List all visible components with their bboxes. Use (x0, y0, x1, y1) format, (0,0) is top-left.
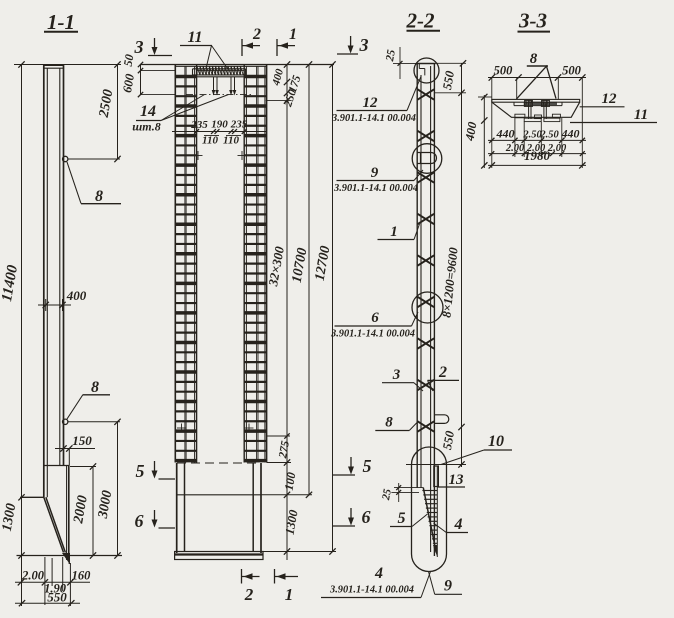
svg-text:160: 160 (72, 569, 92, 583)
svg-text:11: 11 (187, 29, 202, 46)
svg-text:8: 8 (95, 188, 103, 205)
svg-text:14: 14 (140, 103, 156, 120)
svg-text:110: 110 (223, 135, 239, 147)
svg-text:3.901.1-14.1 00.004: 3.901.1-14.1 00.004 (330, 329, 415, 340)
svg-text:190: 190 (211, 119, 228, 131)
svg-text:110: 110 (202, 135, 218, 147)
svg-text:6: 6 (362, 507, 371, 527)
svg-text:3: 3 (359, 35, 369, 55)
svg-text:150: 150 (72, 433, 92, 448)
svg-text:25: 25 (384, 49, 398, 64)
svg-text:3-3: 3-3 (518, 9, 547, 33)
svg-text:1: 1 (390, 224, 398, 240)
svg-text:4: 4 (454, 516, 463, 533)
svg-text:2: 2 (252, 26, 261, 43)
svg-text:550: 550 (47, 590, 67, 605)
svg-text:3: 3 (392, 367, 401, 383)
svg-text:2.00: 2.00 (21, 569, 45, 583)
svg-text:10: 10 (488, 433, 504, 450)
svg-text:12: 12 (602, 91, 618, 107)
svg-text:235: 235 (190, 119, 208, 131)
svg-text:500: 500 (494, 64, 514, 78)
svg-text:6: 6 (371, 310, 379, 326)
svg-text:2: 2 (244, 585, 254, 604)
svg-text:2: 2 (438, 364, 447, 381)
svg-text:8: 8 (385, 415, 393, 431)
svg-text:3.901.1-14.1 00.004: 3.901.1-14.1 00.004 (333, 183, 418, 194)
svg-text:9: 9 (371, 165, 379, 181)
svg-text:8: 8 (530, 51, 538, 67)
svg-text:3.901.1-14.1 00.004: 3.901.1-14.1 00.004 (329, 585, 414, 596)
svg-text:5: 5 (363, 456, 372, 476)
svg-text:13: 13 (449, 472, 465, 488)
svg-text:440: 440 (496, 127, 515, 141)
svg-text:5: 5 (136, 461, 145, 481)
svg-text:9: 9 (444, 578, 452, 595)
svg-text:3: 3 (134, 37, 144, 57)
svg-text:1: 1 (289, 26, 297, 43)
svg-text:1: 1 (285, 585, 294, 604)
svg-text:235: 235 (230, 119, 248, 131)
svg-text:6: 6 (135, 511, 144, 531)
svg-text:4: 4 (374, 565, 383, 582)
svg-text:1-1: 1-1 (47, 10, 75, 34)
svg-text:400: 400 (66, 288, 87, 303)
svg-text:шт.8: шт.8 (132, 120, 160, 134)
svg-text:500: 500 (562, 64, 582, 78)
svg-text:8: 8 (91, 379, 99, 396)
svg-text:1980: 1980 (524, 148, 551, 163)
svg-text:5: 5 (398, 510, 406, 527)
svg-text:2-2: 2-2 (406, 9, 435, 33)
svg-text:11: 11 (634, 107, 648, 123)
svg-text:12: 12 (363, 95, 379, 111)
svg-text:3.901.1-14.1 00.004: 3.901.1-14.1 00.004 (331, 113, 416, 124)
